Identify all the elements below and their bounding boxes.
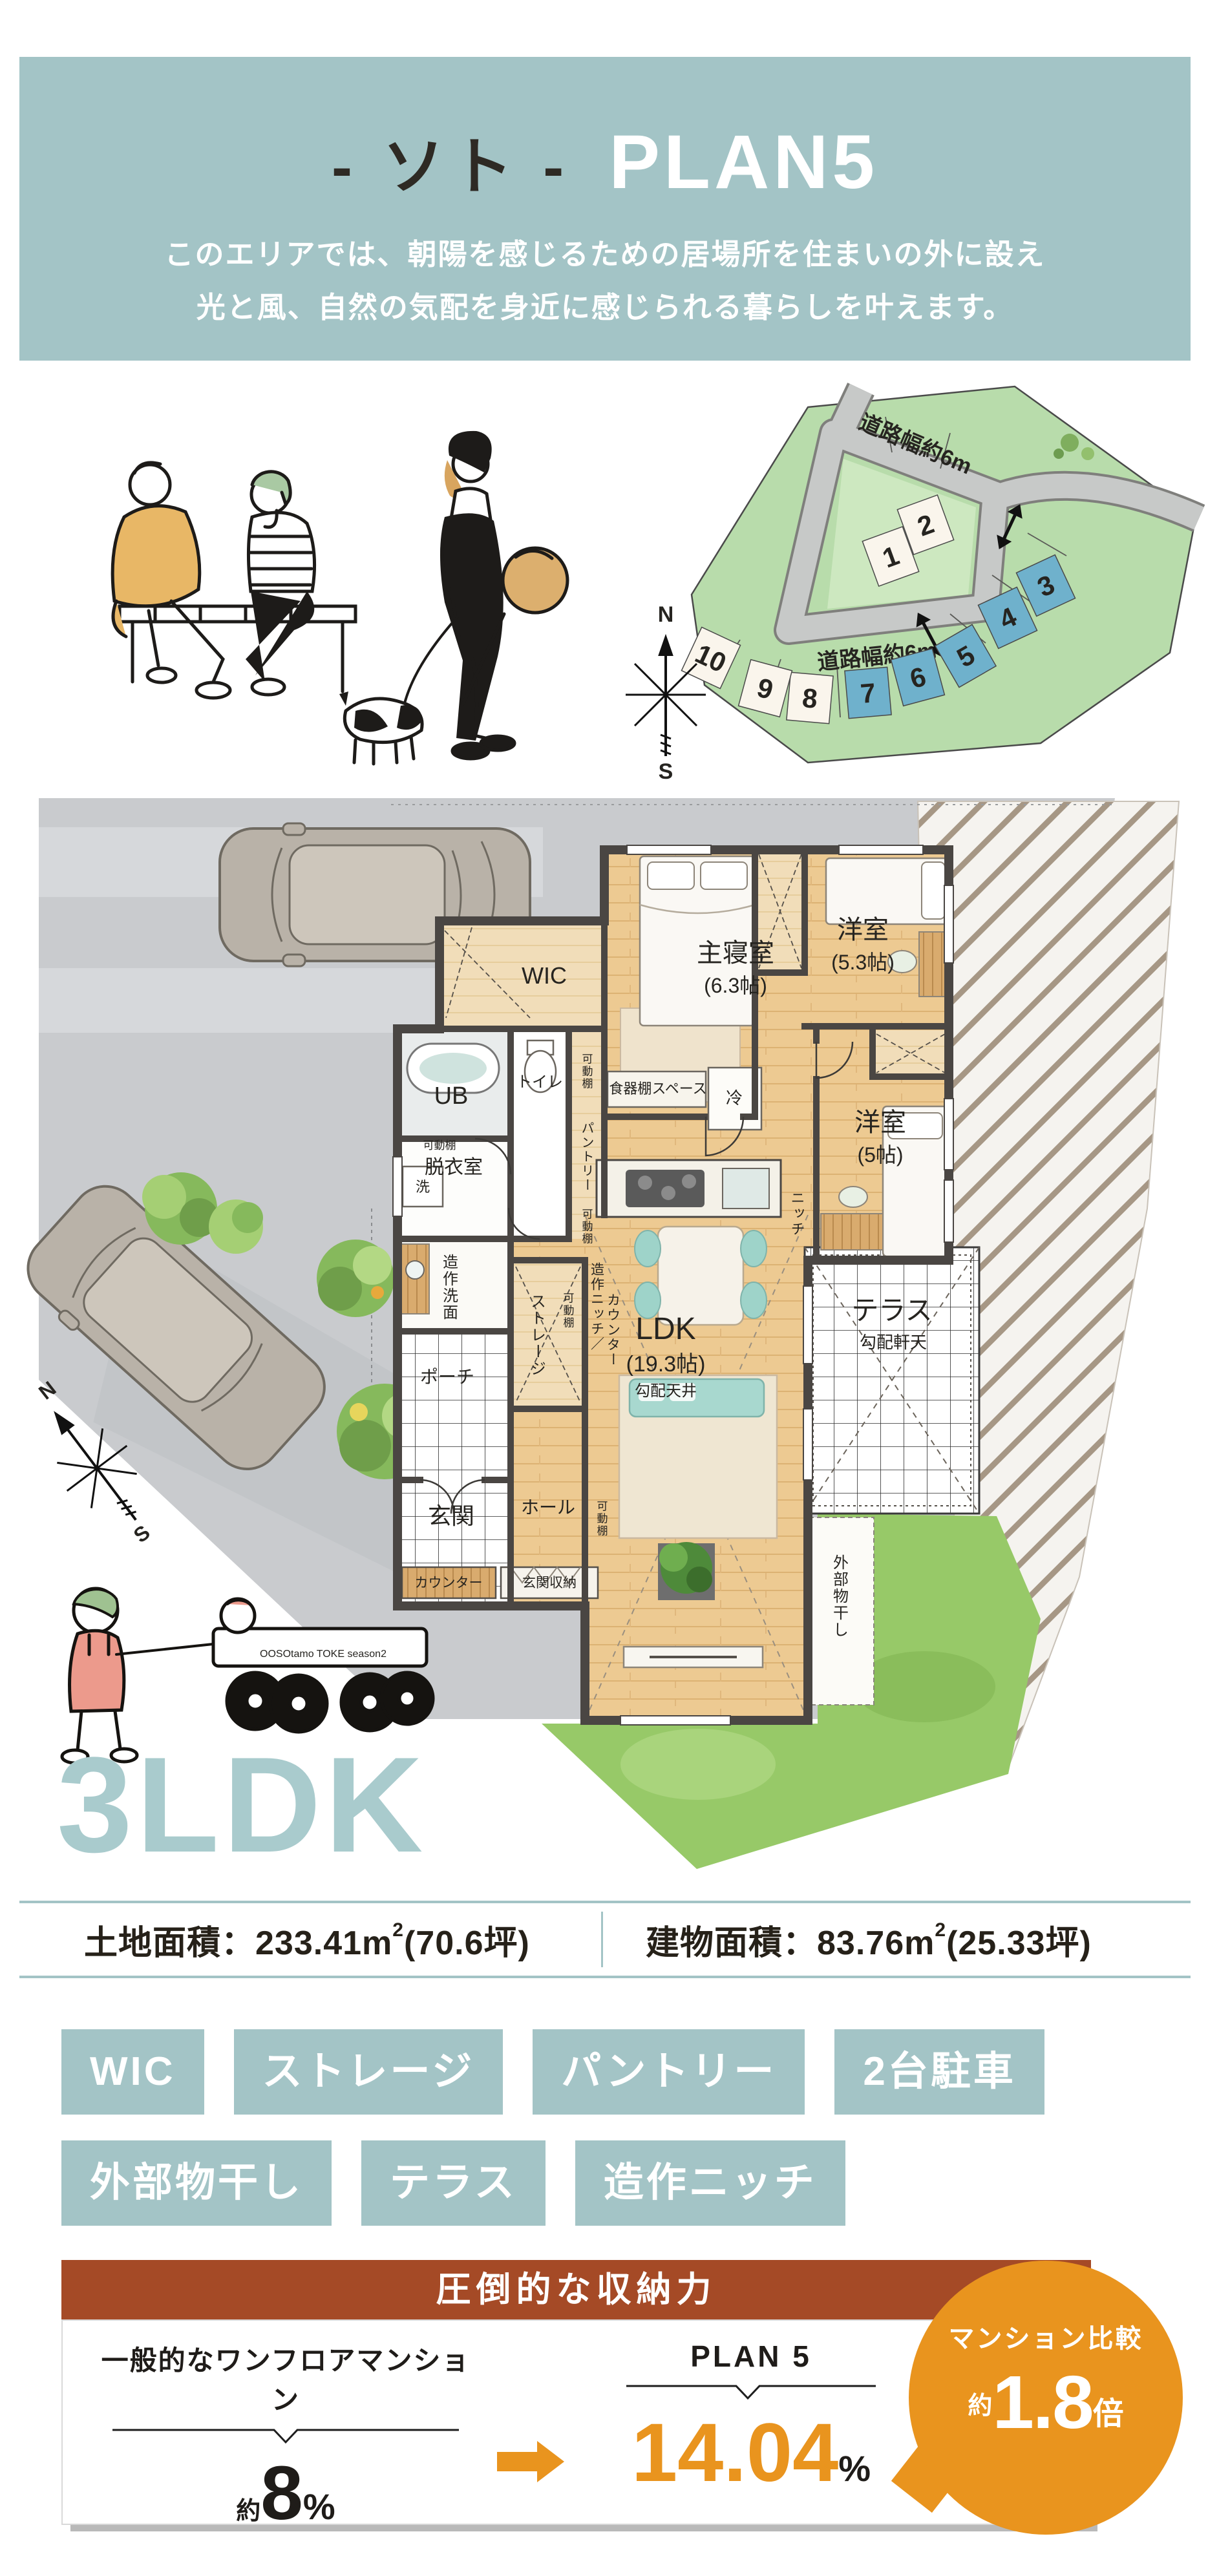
site-plot-7: 7 (845, 667, 891, 718)
area-divider (601, 1912, 603, 1967)
feature-tag: 造作ニッチ (575, 2140, 845, 2226)
floorplan-label: UB (434, 1082, 469, 1110)
floorplan-label: ストレージ (528, 1293, 546, 1377)
building-area-value: 建物面積：83.76m2(25.33坪) (646, 1916, 1092, 1964)
floorplan-label: 主寝室 (697, 939, 774, 967)
compass-north-label: N (658, 602, 674, 627)
floorplan-label: 玄関収納 (522, 1576, 577, 1590)
plan5-percentage: 14.04% (580, 2405, 922, 2500)
floorplan-label: ニッチ (789, 1190, 805, 1237)
land-area-tsubo: (70.6坪) (404, 1925, 530, 1962)
compass-south-label: S (659, 759, 673, 782)
floorplan-label: カウンター (606, 1293, 620, 1367)
floorplan-label: OOSOtamo TOKE season2 (260, 1649, 387, 1660)
floorplan-label: (19.3帖) (626, 1352, 706, 1377)
percent-sign: % (303, 2486, 335, 2527)
floorplan-label: 造作洗面 (440, 1254, 458, 1321)
badge-value-row: 約1.8倍 (909, 2359, 1183, 2445)
mansion-percentage: 約8% (98, 2449, 473, 2537)
floorplan-label: 可動棚 (580, 1209, 593, 1245)
feature-tag: パントリー (533, 2029, 805, 2115)
floorplan-label: LDK (635, 1312, 695, 1346)
dog-walker (440, 431, 567, 759)
floorplan-label: 勾配天井 (635, 1382, 697, 1400)
floorplan-label: 造作ニッチ／ (589, 1262, 605, 1351)
page-title-jp: - ソト - (332, 116, 570, 206)
floorplan-label: (5.3帖) (831, 951, 895, 974)
feature-tag: 2台駐車 (834, 2029, 1044, 2115)
floorplan-label: 可動棚 (423, 1139, 456, 1152)
storage-banner: 圧倒的な収納力 (61, 2260, 1091, 2319)
arrow-right-icon (497, 2441, 568, 2482)
comparison-badge: マンション比較 約1.8倍 (909, 2261, 1183, 2535)
floorplan-label: 冷 (726, 1088, 743, 1108)
badge-multiplier-value: 1.8 (992, 2360, 1092, 2444)
mansion-label: 一般的なワンフロアマンション (98, 2339, 473, 2418)
page-title-plan: PLAN5 (609, 118, 878, 206)
floorplan-label: (5帖) (857, 1143, 903, 1167)
svg-text:7: 7 (859, 677, 876, 709)
floorplan-label: ポーチ (420, 1367, 474, 1387)
layout-type-heading: 3LDK (57, 1737, 427, 1873)
floorplan-label: 玄関 (428, 1503, 474, 1529)
mansion-percent-value: 8 (260, 2451, 303, 2536)
land-area-value: 土地面積：233.41m2(70.6坪) (84, 1916, 601, 1964)
floorplan-label: 外部物干し (831, 1554, 849, 1638)
site-plot-8: 8 (787, 672, 833, 723)
comparison-right-column: PLAN 5 14.04% (580, 2339, 922, 2500)
floorplan-label: WIC (522, 962, 567, 989)
seated-person-coat (112, 463, 230, 698)
bracket-line-icon (625, 2384, 877, 2401)
floorplan-label: テラス (851, 1295, 932, 1325)
floorplan-label: 洋室 (854, 1108, 906, 1137)
feature-tag: テラス (361, 2140, 546, 2226)
floorplan-label: 勾配軒天 (860, 1333, 927, 1352)
land-area-sup: 2 (392, 1919, 404, 1941)
comparison-left-column: 一般的なワンフロアマンション 約8% (98, 2339, 473, 2537)
title-row: - ソト - PLAN5 (19, 116, 1191, 206)
feature-tag: ストレージ (234, 2029, 503, 2115)
feature-tags-row1: WICストレージパントリー2台駐車 (61, 2029, 1192, 2115)
svg-text:8: 8 (801, 682, 818, 714)
floorplan-label: パントリー (579, 1121, 593, 1192)
badge-title: マンション比較 (909, 2317, 1183, 2355)
building-area-tsubo: (25.33坪) (946, 1925, 1092, 1962)
feature-tag: 外部物干し (61, 2140, 332, 2226)
feature-tag: WIC (61, 2029, 204, 2115)
dog-illustration (339, 615, 459, 764)
building-area-text: 建物面積：83.76m (646, 1925, 935, 1962)
badge-approx: 約 (968, 2392, 992, 2420)
floorplan-label: 可動棚 (562, 1293, 575, 1329)
badge-unit: 倍 (1093, 2397, 1124, 2431)
area-summary-row: 土地面積：233.41m2(70.6坪) 建物面積：83.76m2(25.33坪… (19, 1901, 1191, 1978)
bracket-line-icon (111, 2428, 460, 2445)
floorplan-label: 食器棚スペース (609, 1081, 706, 1097)
description-line2: 光と風、自然の気配を身近に感じられる暮らしを叶えます。 (19, 281, 1191, 334)
building-area-sup: 2 (935, 1919, 946, 1941)
floorplan-label: 洗 (416, 1179, 430, 1195)
floorplan-label: カウンター (415, 1576, 483, 1590)
floorplan-label: ホール (521, 1497, 575, 1517)
flyer-page: { "header": { "title_jp": "- ソト -", "tit… (0, 0, 1208, 2576)
floorplan-label: トイレ (516, 1073, 563, 1091)
site-compass-icon: N S (626, 602, 706, 782)
floorplan-label: 洋室 (837, 916, 889, 944)
site-plan-map: 道路幅約6m 道路幅約6m 21345678910 N S (614, 381, 1208, 782)
floorplan-label: (6.3帖) (704, 974, 767, 997)
people-illustration (52, 388, 608, 769)
feature-tags-row2: 外部物干しテラス造作ニッチ (61, 2140, 1192, 2226)
floorplan-label: 可動棚 (580, 1053, 593, 1090)
header-banner: - ソト - PLAN5 このエリアでは、朝陽を感じるための居場所を住まいの外に… (19, 57, 1191, 361)
plan5-percent-value: 14.04 (631, 2407, 838, 2499)
floorplan-label: 脱衣室 (425, 1157, 483, 1178)
percent-sign: % (838, 2448, 871, 2489)
plan5-label: PLAN 5 (580, 2339, 922, 2374)
header-description: このエリアでは、朝陽を感じるための居場所を住まいの外に設え 光と風、自然の気配を… (19, 228, 1191, 334)
seated-person-striped (246, 472, 315, 695)
floor-plan: WIC主寝室(6.3帖)洋室(5.3帖)洋室(5帖)UBトイレ脱衣室洗可動棚造作… (19, 795, 1189, 1874)
description-line1: このエリアでは、朝陽を感じるための居場所を住まいの外に設え (19, 228, 1191, 281)
land-area-text: 土地面積：233.41m (84, 1925, 392, 1962)
approx-label: 約 (236, 2498, 260, 2525)
floorplan-label: 可動棚 (595, 1501, 608, 1537)
storage-comparison-section: 圧倒的な収納力 一般的なワンフロアマンション 約8% PLAN 5 14.04%… (61, 2260, 1091, 2525)
